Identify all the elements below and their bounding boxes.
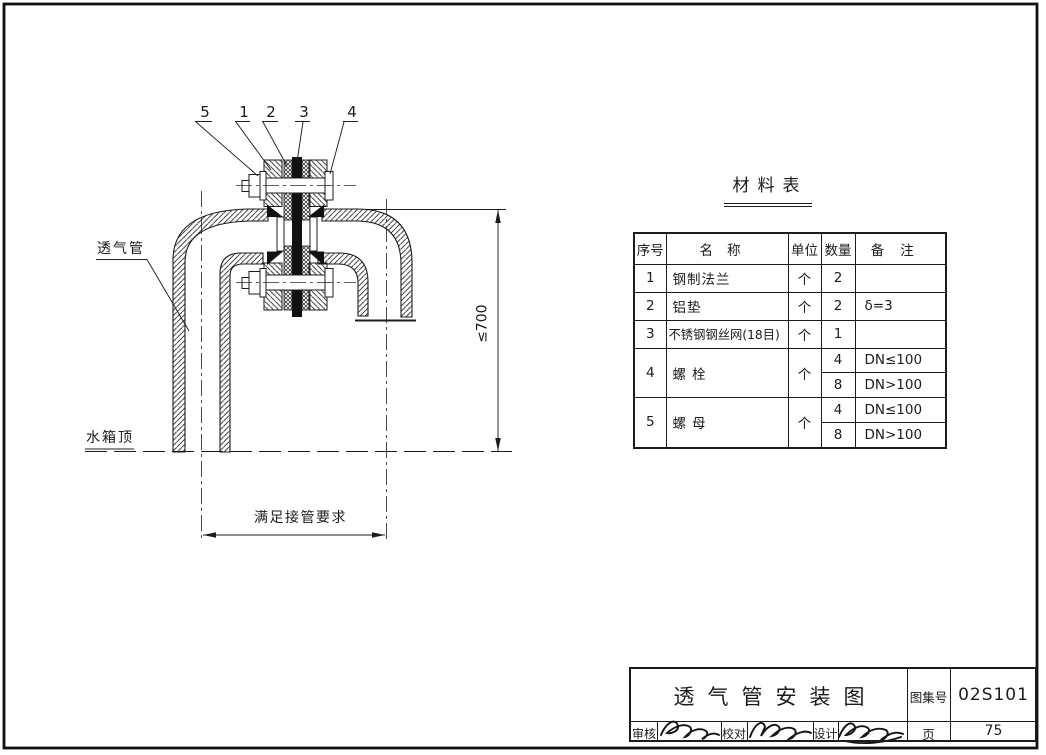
callout-4: 4 [345, 104, 359, 121]
cell-qty: 8 [821, 422, 855, 448]
table-row: 5 螺母 个 4 DN≤100 [634, 397, 946, 422]
cell-no: 1 [634, 264, 666, 292]
cell-note: δ=3 [855, 292, 946, 320]
height-dimension-label: ≤700 [475, 296, 490, 352]
atlas-number: 02S101 [950, 685, 1037, 705]
divider [838, 722, 839, 740]
arrow-down [495, 438, 501, 451]
cell-note: DN≤100 [855, 397, 946, 422]
drawing-sheet: 5 1 2 3 4 透气管 水箱顶 满足接管要求 ≤700 材料表 序号 名称 … [0, 0, 1046, 755]
table-row: 3 不锈钢钢丝网(18目) 个 1 [634, 320, 946, 348]
table-row: 2 铝垫 个 2 δ=3 [634, 292, 946, 320]
cell-note: DN≤100 [855, 348, 946, 372]
cell-name: 铝垫 [666, 292, 788, 320]
divider [747, 722, 748, 740]
cell-unit: 个 [788, 320, 821, 348]
cell-qty: 2 [821, 292, 855, 320]
cell-note: DN>100 [855, 372, 946, 397]
cell-qty: 1 [821, 320, 855, 348]
callout-2: 2 [264, 104, 278, 121]
tank-top-label: 水箱顶 [86, 431, 134, 446]
header-unit: 单位 [788, 233, 821, 264]
cell-qty: 4 [821, 397, 855, 422]
cell-name: 钢制法兰 [666, 264, 788, 292]
cell-qty: 2 [821, 264, 855, 292]
cell-qty: 4 [821, 348, 855, 372]
header-note: 备注 [855, 233, 946, 264]
title-block-divider [631, 721, 1035, 723]
cell-qty: 8 [821, 372, 855, 397]
cell-no: 3 [634, 320, 666, 348]
table-header-row: 序号 名称 单位 数量 备注 [634, 233, 946, 264]
checker-label: 校对 [721, 725, 747, 742]
cell-note [855, 264, 946, 292]
materials-table: 序号 名称 单位 数量 备注 1 钢制法兰 个 2 2 铝垫 个 2 δ=3 3… [633, 232, 947, 449]
callout-1: 1 [237, 104, 251, 121]
cell-unit: 个 [788, 264, 821, 292]
cell-name: 不锈钢钢丝网(18目) [666, 320, 788, 348]
designer-label: 设计 [813, 725, 838, 742]
arrow-up [495, 210, 501, 223]
header-name: 名称 [666, 233, 788, 264]
span-dimension-label: 满足接管要求 [254, 511, 347, 526]
cell-name: 螺栓 [666, 348, 788, 397]
cell-no: 2 [634, 292, 666, 320]
atlas-number-label: 图集号 [907, 687, 950, 706]
sheet-title: 透气管安装图 [631, 681, 907, 711]
table-row: 4 螺栓 个 4 DN≤100 [634, 348, 946, 372]
cell-unit: 个 [788, 397, 821, 448]
header-no: 序号 [634, 233, 666, 264]
cell-no: 5 [634, 397, 666, 448]
title-block: 透气管安装图 图集号 02S101 审核 校对 设计 页 75 [629, 667, 1037, 742]
cell-note [855, 320, 946, 348]
cell-unit: 个 [788, 292, 821, 320]
cell-name: 螺母 [666, 397, 788, 448]
callout-5: 5 [198, 104, 212, 121]
header-qty: 数量 [821, 233, 855, 264]
vent-pipe-label: 透气管 [97, 242, 145, 257]
arrow-right [372, 532, 385, 538]
cell-no: 4 [634, 348, 666, 397]
arrow-left [203, 532, 216, 538]
cell-note: DN>100 [855, 422, 946, 448]
callout-3: 3 [297, 104, 311, 121]
reviewer-label: 审核 [631, 725, 657, 742]
materials-table-title: 材料表 [722, 177, 818, 196]
divider [657, 722, 658, 740]
page-number: 75 [950, 723, 1037, 739]
table-row: 1 钢制法兰 个 2 [634, 264, 946, 292]
table-title-underline [724, 204, 812, 207]
page-label: 页 [907, 724, 950, 743]
cell-unit: 个 [788, 348, 821, 397]
